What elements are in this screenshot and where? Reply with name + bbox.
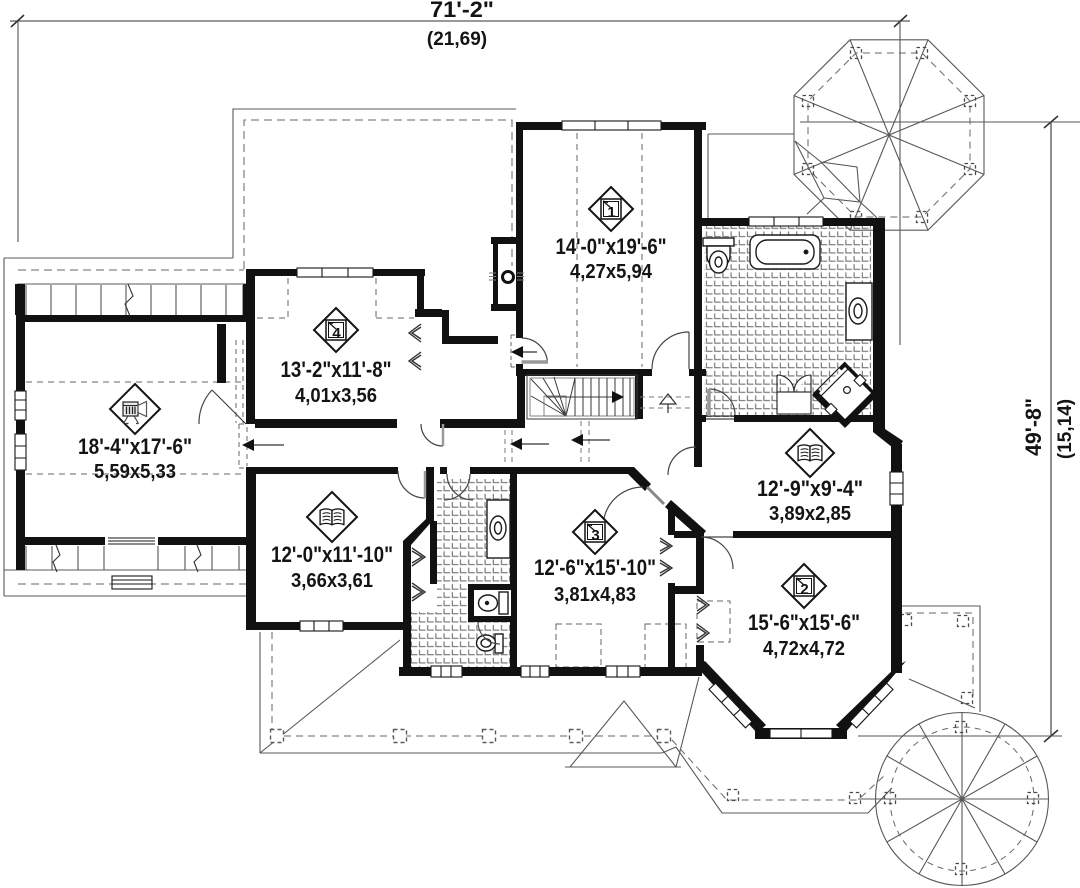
svg-text:15'-6"x15'-6": 15'-6"x15'-6" <box>748 610 860 635</box>
svg-text:71'-2": 71'-2" <box>430 0 494 22</box>
svg-text:14'-0"x19'-6": 14'-0"x19'-6" <box>556 234 667 259</box>
svg-text:4,27x5,94: 4,27x5,94 <box>570 261 653 283</box>
svg-text:3,81x4,83: 3,81x4,83 <box>554 584 636 606</box>
svg-text:49'-8": 49'-8" <box>1021 398 1046 456</box>
svg-text:3: 3 <box>591 527 599 544</box>
svg-text:12'-0"x11'-10": 12'-0"x11'-10" <box>271 542 393 567</box>
svg-text:3,89x2,85: 3,89x2,85 <box>769 503 851 525</box>
svg-text:12'-9"x9'-4": 12'-9"x9'-4" <box>757 476 863 501</box>
svg-text:4,01x3,56: 4,01x3,56 <box>295 385 377 407</box>
svg-text:4,72x4,72: 4,72x4,72 <box>763 638 845 660</box>
svg-text:(21,69): (21,69) <box>427 29 487 50</box>
svg-text:3,66x3,61: 3,66x3,61 <box>291 570 373 592</box>
svg-text:1: 1 <box>607 204 615 221</box>
svg-text:(15,14): (15,14) <box>1055 399 1076 459</box>
svg-text:12'-6"x15'-10": 12'-6"x15'-10" <box>534 555 656 580</box>
svg-text:13'-2"x11'-8": 13'-2"x11'-8" <box>281 357 392 382</box>
svg-text:18'-4"x17'-6": 18'-4"x17'-6" <box>78 434 192 459</box>
svg-text:4: 4 <box>332 325 341 342</box>
svg-text:2: 2 <box>800 581 808 598</box>
svg-text:5,59x5,33: 5,59x5,33 <box>94 461 176 483</box>
